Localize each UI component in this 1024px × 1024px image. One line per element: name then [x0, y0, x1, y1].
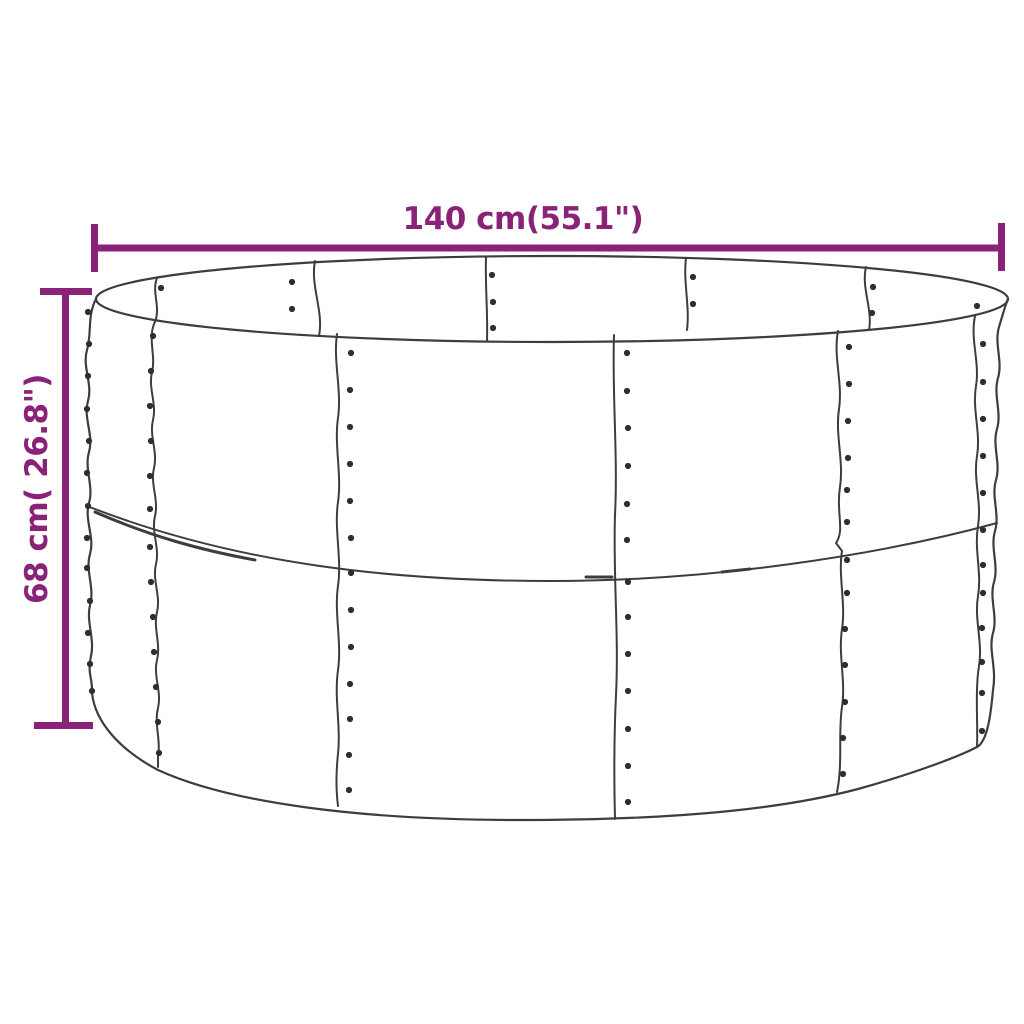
rivet-dot: [150, 614, 156, 620]
rivet-dot: [87, 598, 93, 604]
rivet-dot: [148, 579, 154, 585]
rivet-dot: [980, 453, 986, 459]
rivet-dot: [979, 625, 985, 631]
rivet-dot: [490, 325, 496, 331]
rivet-dot: [150, 333, 156, 339]
rivet-dot: [980, 416, 986, 422]
rivet-dot: [842, 626, 848, 632]
rivet-dot: [289, 279, 295, 285]
rivet-dot: [85, 503, 91, 509]
rivet-dot: [625, 651, 631, 657]
rivet-dot: [153, 684, 159, 690]
front-seam-4: [836, 331, 843, 792]
rivet-dot: [625, 726, 631, 732]
diagram-canvas: 140 cm(55.1") 68 cm( 26.8"): [0, 0, 1024, 1024]
rim-seam-5: [865, 267, 870, 330]
rivet-dot: [980, 562, 986, 568]
rivet-dot: [85, 309, 91, 315]
rivet-dot: [84, 406, 90, 412]
rivet-dot: [870, 284, 876, 290]
mid-seam: [87, 506, 997, 581]
rivet-dot: [974, 303, 980, 309]
rivet-dot: [156, 750, 162, 756]
rivet-dot: [844, 519, 850, 525]
rivet-dot: [86, 438, 92, 444]
rivet-dot: [846, 381, 852, 387]
rim-ellipse: [96, 256, 1008, 342]
rivet-dot: [148, 438, 154, 444]
rivet-dot: [347, 387, 353, 393]
mid-seam-overlap-3: [722, 569, 750, 572]
rivet-dot: [844, 557, 850, 563]
rivet-dot: [348, 644, 354, 650]
rivet-dot: [840, 735, 846, 741]
rivet-dot: [625, 463, 631, 469]
rivet-dot: [84, 535, 90, 541]
rivet-dot: [844, 487, 850, 493]
rivet-dot: [690, 301, 696, 307]
rivet-dot: [624, 537, 630, 543]
rivet-dot: [84, 470, 90, 476]
garden-bed-drawing: [84, 256, 1008, 820]
rivet-dot: [980, 379, 986, 385]
rivet-dot: [158, 285, 164, 291]
rivet-dot: [489, 272, 495, 278]
rim-seam-2: [314, 261, 320, 336]
rivet-dot: [85, 630, 91, 636]
width-dimension: 140 cm(55.1"): [94, 201, 1002, 272]
rivet-dot: [625, 425, 631, 431]
rivet-dot: [348, 535, 354, 541]
rivet-dot: [625, 614, 631, 620]
front-seam-2: [336, 334, 339, 806]
rivet-dot: [85, 373, 91, 379]
rim-seam-3: [486, 257, 487, 341]
rivet-dot: [347, 716, 353, 722]
rivet-dot: [89, 688, 95, 694]
rivet-dot: [289, 306, 295, 312]
rivet-dot: [347, 461, 353, 467]
rivet-dot: [846, 344, 852, 350]
rivet-dot: [842, 699, 848, 705]
rivet-dot: [979, 690, 985, 696]
front-seam-3: [614, 335, 617, 819]
rivet-dot: [979, 659, 985, 665]
rivet-dot: [348, 350, 354, 356]
rivet-dot: [347, 424, 353, 430]
rivet-dot: [625, 579, 631, 585]
product-dimension-diagram: 140 cm(55.1") 68 cm( 26.8"): [0, 0, 1024, 1024]
rivet-dot: [624, 501, 630, 507]
rivet-dot: [348, 607, 354, 613]
width-dimension-label: 140 cm(55.1"): [403, 201, 644, 237]
rivet-dot: [151, 649, 157, 655]
rivet-dot: [690, 274, 696, 280]
rivet-dot: [844, 590, 850, 596]
rivet-dot: [624, 350, 630, 356]
rivet-dot: [979, 728, 985, 734]
rivet-dot: [869, 310, 875, 316]
height-dimension: 68 cm( 26.8"): [19, 291, 93, 726]
rivet-dot: [347, 498, 353, 504]
rivet-dot: [346, 752, 352, 758]
front-seam-5: [974, 316, 980, 747]
rivet-dot: [87, 661, 93, 667]
rivet-dot: [845, 418, 851, 424]
rivet-dot: [490, 299, 496, 305]
rivet-dot: [155, 719, 161, 725]
rivet-dot: [86, 341, 92, 347]
rivet-dot: [348, 570, 354, 576]
rivet-dot: [842, 662, 848, 668]
rivet-dot: [624, 388, 630, 394]
rivet-dot: [980, 590, 986, 596]
body-outline: [86, 299, 1008, 820]
rivet-dot: [147, 403, 153, 409]
rim-seam-4: [685, 258, 688, 330]
rivet-dot: [625, 688, 631, 694]
rivet-dot: [148, 368, 154, 374]
height-dimension-label: 68 cm( 26.8"): [19, 374, 55, 604]
rivet-dot: [147, 544, 153, 550]
rivet-dot: [625, 763, 631, 769]
rivet-dot: [980, 490, 986, 496]
rivet-dot: [346, 787, 352, 793]
rivet-dot: [845, 455, 851, 461]
rivet-dot: [347, 681, 353, 687]
rivet-dot: [980, 527, 986, 533]
rivet-dot: [840, 771, 846, 777]
rivet-dot: [980, 341, 986, 347]
rivet-dot: [625, 799, 631, 805]
rivet-dot: [147, 506, 153, 512]
rivet-dot: [84, 565, 90, 571]
rivet-dot: [147, 473, 153, 479]
front-seam-1: [151, 278, 159, 767]
